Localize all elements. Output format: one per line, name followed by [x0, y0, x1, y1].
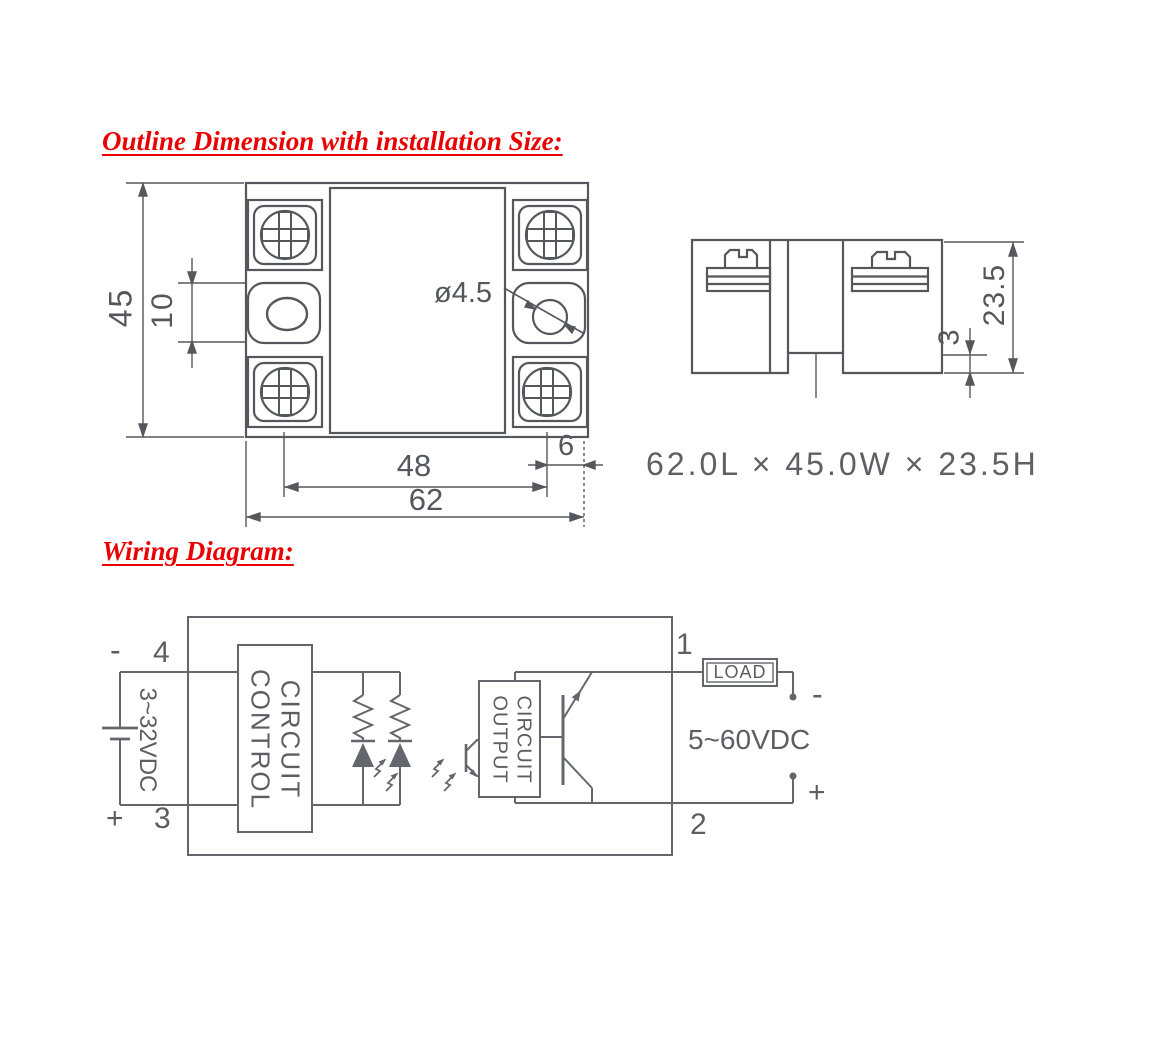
output-minus-sign: -	[812, 676, 823, 713]
ssr-center-cover	[330, 188, 505, 433]
input-minus-sign: -	[110, 632, 121, 669]
input-plus-sign: +	[106, 802, 124, 836]
screw-terminal-top-left	[248, 200, 322, 270]
output-circuit-label-line1: OUTPUT	[488, 679, 511, 801]
dim-label-10: 10	[146, 270, 180, 350]
side-view-drawing	[692, 240, 942, 398]
control-input-wiring	[102, 672, 238, 805]
terminal-1-label: 1	[676, 628, 693, 662]
supply-minus-node	[790, 694, 797, 701]
front-view-dimensions	[126, 183, 603, 527]
side-terminal-right	[852, 252, 928, 291]
terminal-4-label: 4	[153, 636, 170, 670]
drawing-linework	[0, 0, 1175, 1054]
wiring-section-title: Wiring Diagram:	[102, 536, 294, 567]
control-circuit-label-line1: CONTROL	[245, 645, 276, 835]
led-window-slot	[248, 283, 320, 343]
dim-label-6: 6	[558, 430, 574, 463]
outline-section-title: Outline Dimension with installation Size…	[102, 126, 563, 157]
dim-label-48: 48	[384, 448, 444, 484]
overall-size-caption: 62.0L × 45.0W × 23.5H	[646, 446, 1039, 483]
phototransistor	[466, 740, 479, 777]
light-emission-arrows	[374, 759, 457, 792]
output-plus-sign: +	[808, 776, 826, 810]
output-voltage-label: 5~60VDC	[688, 724, 810, 756]
led-resistor-branch-1	[351, 672, 375, 805]
dim-label-3: 3	[934, 316, 967, 360]
screw-terminal-top-right	[513, 200, 587, 270]
side-body-outline	[692, 240, 942, 373]
supply-plus-node	[790, 773, 797, 780]
datasheet-page: Outline Dimension with installation Size…	[0, 0, 1175, 1054]
side-terminal-left	[707, 250, 770, 291]
dim-label-hole-dia: ø4.5	[434, 277, 492, 310]
output-circuit-label-line2: CIRCUIT	[512, 679, 535, 801]
terminal-2-label: 2	[690, 808, 707, 842]
mounting-hole	[504, 283, 585, 343]
screw-terminal-bottom-left	[248, 357, 322, 427]
control-circuit-label-line2: CIRCUIT	[275, 645, 306, 835]
load-label: LOAD	[703, 659, 777, 686]
dim-label-23-5: 23.5	[978, 245, 1012, 345]
screw-terminal-bottom-right	[513, 357, 587, 427]
dim-label-62: 62	[396, 482, 456, 518]
dim-label-45: 45	[103, 268, 140, 348]
input-voltage-label: 3~32VDC	[133, 670, 161, 810]
